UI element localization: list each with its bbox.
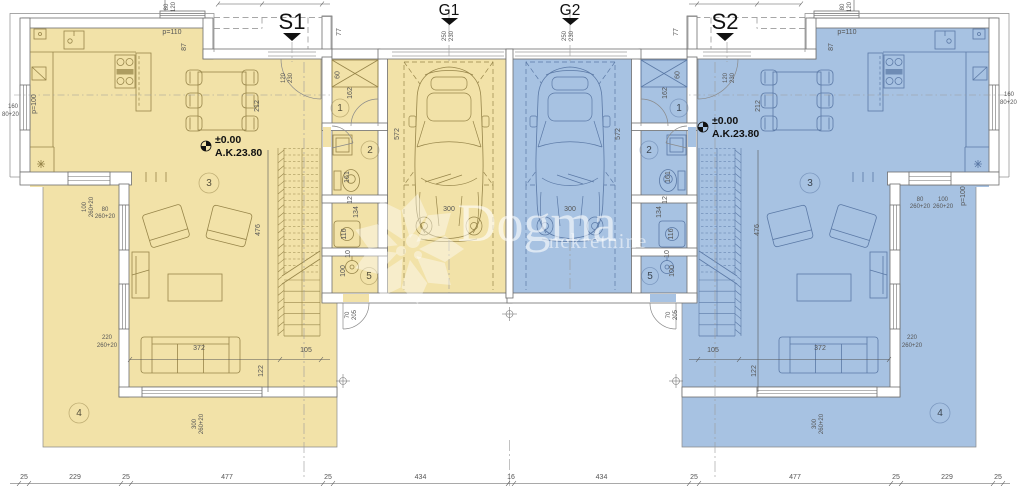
svg-text:1: 1 (337, 103, 343, 114)
svg-text:100: 100 (669, 265, 676, 277)
svg-text:300: 300 (443, 206, 455, 213)
svg-text:nekretnine: nekretnine (549, 229, 648, 253)
svg-text:160: 160 (8, 104, 19, 110)
svg-text:100: 100 (938, 197, 949, 203)
svg-text:S2: S2 (712, 9, 739, 34)
svg-text:±0.00: ±0.00 (215, 134, 241, 146)
svg-text:2: 2 (367, 145, 373, 156)
svg-text:205: 205 (352, 309, 358, 320)
svg-text:116: 116 (341, 228, 348, 239)
svg-text:229: 229 (941, 474, 953, 481)
svg-text:77: 77 (336, 28, 343, 36)
svg-text:229: 229 (69, 474, 81, 481)
svg-text:77: 77 (673, 28, 680, 36)
svg-text:230: 230 (288, 72, 294, 83)
svg-text:5: 5 (366, 271, 372, 282)
svg-text:1: 1 (676, 103, 682, 114)
svg-text:212: 212 (755, 100, 762, 112)
svg-text:25: 25 (20, 474, 28, 481)
svg-text:120: 120 (847, 1, 853, 12)
svg-text:161: 161 (665, 171, 672, 183)
svg-text:10: 10 (664, 250, 671, 258)
svg-text:80+20: 80+20 (2, 112, 20, 118)
svg-text:122: 122 (258, 365, 265, 377)
svg-text:572: 572 (394, 128, 401, 140)
svg-text:3: 3 (206, 178, 212, 189)
svg-text:300: 300 (192, 418, 198, 429)
svg-text:G1: G1 (439, 2, 460, 19)
svg-text:4: 4 (937, 408, 943, 419)
svg-text:±0.00: ±0.00 (712, 115, 738, 127)
svg-text:A.K.23.80: A.K.23.80 (712, 128, 759, 140)
svg-text:116: 116 (668, 228, 675, 239)
svg-text:87: 87 (181, 43, 188, 51)
svg-text:87: 87 (828, 43, 835, 51)
svg-text:477: 477 (789, 474, 801, 481)
svg-text:260+20: 260+20 (910, 204, 931, 210)
svg-text:122: 122 (751, 365, 758, 377)
svg-text:477: 477 (221, 474, 233, 481)
svg-text:162: 162 (347, 87, 354, 99)
svg-text:100: 100 (82, 201, 88, 212)
svg-text:p=100: p=100 (31, 94, 38, 114)
svg-text:161: 161 (344, 171, 351, 183)
svg-text:260+20: 260+20 (199, 413, 205, 434)
svg-text:230: 230 (730, 72, 736, 83)
svg-text:p=100: p=100 (960, 186, 967, 206)
svg-text:160: 160 (1004, 92, 1015, 98)
svg-text:372: 372 (193, 345, 205, 352)
svg-text:25: 25 (892, 474, 900, 481)
svg-text:250: 250 (442, 30, 448, 41)
svg-text:434: 434 (415, 474, 427, 481)
svg-text:80+20: 80+20 (1000, 100, 1018, 106)
svg-text:p=110: p=110 (837, 29, 856, 36)
svg-text:260+20: 260+20 (902, 343, 923, 349)
svg-text:p=110: p=110 (162, 29, 181, 36)
svg-text:S1: S1 (279, 9, 306, 34)
svg-text:2: 2 (646, 145, 652, 156)
svg-text:572: 572 (615, 128, 622, 140)
svg-text:80: 80 (840, 3, 846, 10)
svg-text:105: 105 (300, 347, 312, 354)
svg-text:260+20: 260+20 (97, 343, 118, 349)
svg-text:220: 220 (102, 335, 113, 341)
svg-text:250: 250 (562, 30, 568, 41)
svg-text:4: 4 (76, 408, 82, 419)
svg-text:120: 120 (281, 72, 287, 83)
svg-text:105: 105 (707, 347, 719, 354)
svg-text:70: 70 (345, 311, 351, 318)
svg-text:5: 5 (647, 271, 653, 282)
svg-text:230: 230 (569, 30, 575, 41)
svg-text:25: 25 (324, 474, 332, 481)
svg-text:70: 70 (666, 311, 672, 318)
svg-text:12: 12 (347, 196, 354, 204)
svg-text:25: 25 (994, 474, 1002, 481)
svg-text:60: 60 (675, 71, 682, 79)
svg-text:12: 12 (662, 196, 669, 204)
svg-text:120: 120 (723, 72, 729, 83)
svg-text:134: 134 (656, 206, 663, 218)
svg-text:100: 100 (340, 265, 347, 277)
svg-text:260+20: 260+20 (95, 214, 116, 220)
svg-text:134: 134 (353, 206, 360, 218)
svg-text:16: 16 (507, 474, 515, 481)
svg-text:372: 372 (814, 345, 826, 352)
svg-text:162: 162 (662, 87, 669, 99)
svg-text:434: 434 (596, 474, 608, 481)
svg-text:A.K.23.80: A.K.23.80 (215, 147, 262, 159)
svg-text:25: 25 (690, 474, 698, 481)
svg-text:80: 80 (102, 207, 109, 213)
svg-text:60: 60 (335, 71, 342, 79)
svg-text:260+20: 260+20 (819, 413, 825, 434)
svg-text:230: 230 (449, 30, 455, 41)
svg-text:260+20: 260+20 (933, 204, 954, 210)
svg-text:10: 10 (345, 250, 352, 258)
svg-text:25: 25 (122, 474, 130, 481)
svg-text:205: 205 (673, 309, 679, 320)
svg-text:80: 80 (917, 197, 924, 203)
svg-text:476: 476 (255, 224, 262, 236)
svg-text:212: 212 (254, 100, 261, 112)
svg-text:3: 3 (807, 178, 813, 189)
svg-text:300: 300 (812, 418, 818, 429)
svg-text:220: 220 (907, 335, 918, 341)
svg-text:476: 476 (754, 224, 761, 236)
svg-text:120: 120 (171, 1, 177, 12)
svg-text:G2: G2 (560, 2, 581, 19)
